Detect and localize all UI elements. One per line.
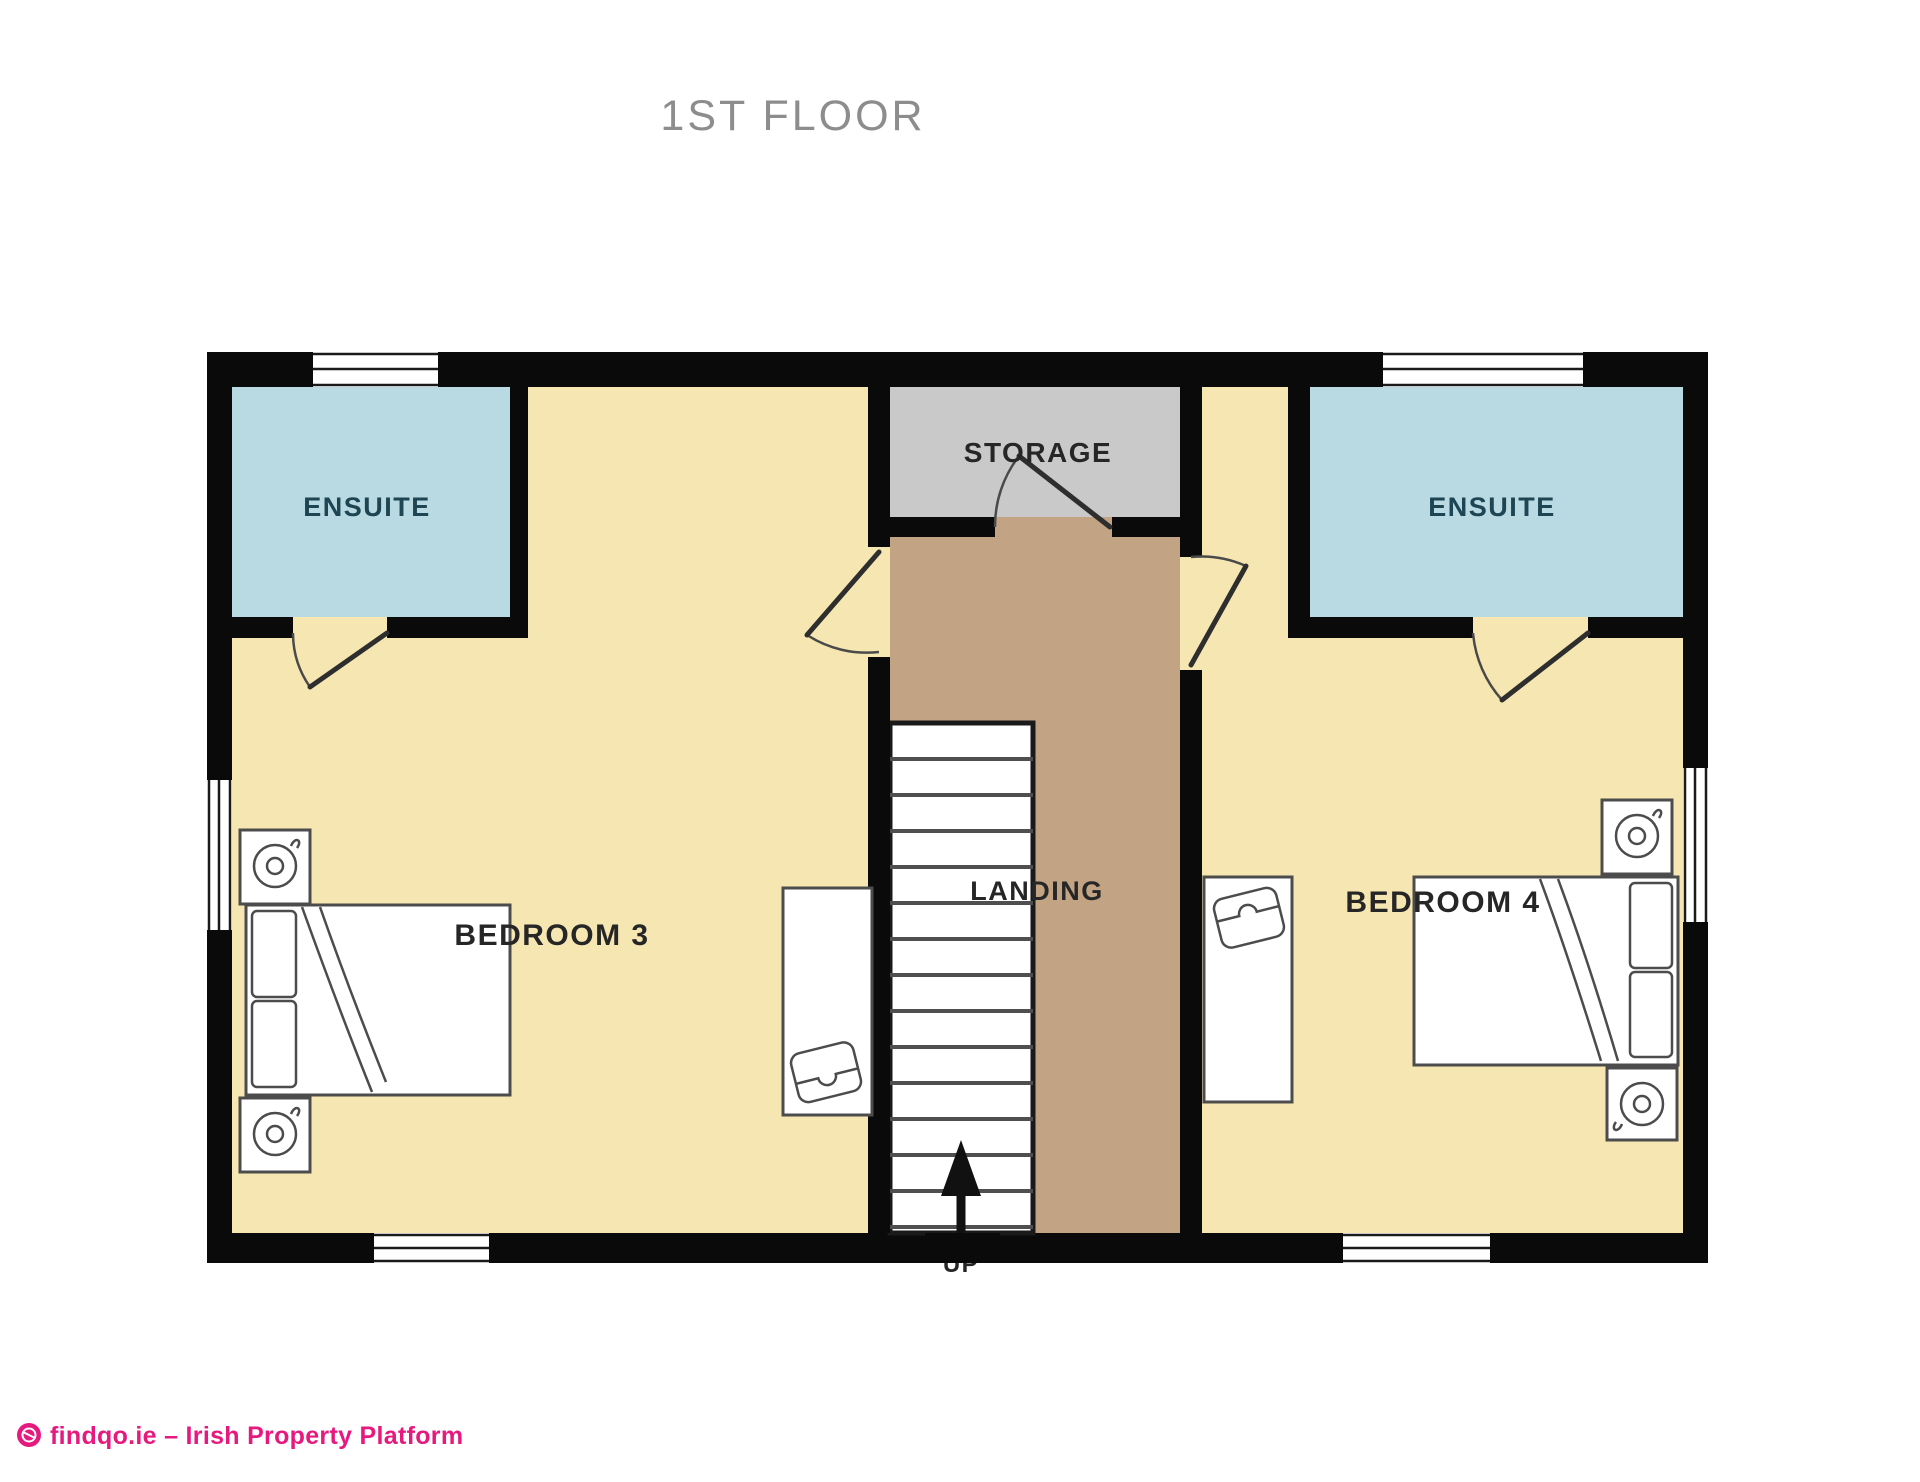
footer: findqo.ie – Irish Property Platform bbox=[17, 1422, 463, 1450]
floorplan-page: 1ST FLOOR UP bbox=[0, 0, 1920, 1482]
page-title: 1ST FLOOR bbox=[660, 92, 925, 140]
wall-patch-over-up-label bbox=[925, 1233, 1000, 1263]
floorplan-canvas: 1ST FLOOR UP bbox=[0, 0, 1920, 1482]
wall-landing-right-upper bbox=[1180, 387, 1202, 557]
staircase: UP bbox=[890, 723, 1033, 1278]
wall-landing-right-lower bbox=[1180, 670, 1202, 1233]
wall-ensuite-right-bottom-a bbox=[1288, 617, 1473, 638]
desk-with-chair bbox=[783, 888, 872, 1115]
window-right bbox=[1683, 768, 1708, 922]
window-top-left bbox=[313, 352, 438, 387]
wall-ensuite-right-bottom-b bbox=[1588, 617, 1683, 638]
wall-ensuite-left-bottom-a bbox=[232, 617, 293, 638]
nightstand-with-lamp bbox=[240, 830, 310, 904]
landing-label: LANDING bbox=[970, 876, 1104, 906]
bedroom-4-label: BEDROOM 4 bbox=[1345, 886, 1540, 919]
pillow bbox=[252, 1001, 296, 1087]
nightstand-with-lamp bbox=[240, 1098, 310, 1172]
window-top-right bbox=[1383, 352, 1583, 387]
bedroom-3-label: BEDROOM 3 bbox=[454, 919, 649, 952]
window-left bbox=[207, 780, 232, 930]
wall-ensuite-right-left bbox=[1288, 387, 1310, 638]
wall-storage-bottom-a bbox=[868, 517, 995, 537]
ensuite-right-label: ENSUITE bbox=[1428, 492, 1556, 522]
nightstand-with-lamp bbox=[1602, 800, 1672, 874]
pillow bbox=[252, 911, 296, 997]
wall-ensuite-left-right bbox=[510, 387, 528, 638]
brand-text: findqo.ie – Irish Property Platform bbox=[50, 1422, 463, 1450]
pillow bbox=[1630, 883, 1672, 968]
window-bottom-right bbox=[1343, 1233, 1490, 1263]
nightstand-with-lamp bbox=[1607, 1068, 1677, 1140]
wall-ensuite-left-bottom-b bbox=[387, 617, 528, 638]
storage-label: STORAGE bbox=[964, 437, 1112, 468]
ensuite-left-label: ENSUITE bbox=[303, 492, 431, 522]
window-bottom-left bbox=[374, 1233, 489, 1263]
pillow bbox=[1630, 972, 1672, 1057]
desk-with-chair bbox=[1204, 877, 1292, 1102]
